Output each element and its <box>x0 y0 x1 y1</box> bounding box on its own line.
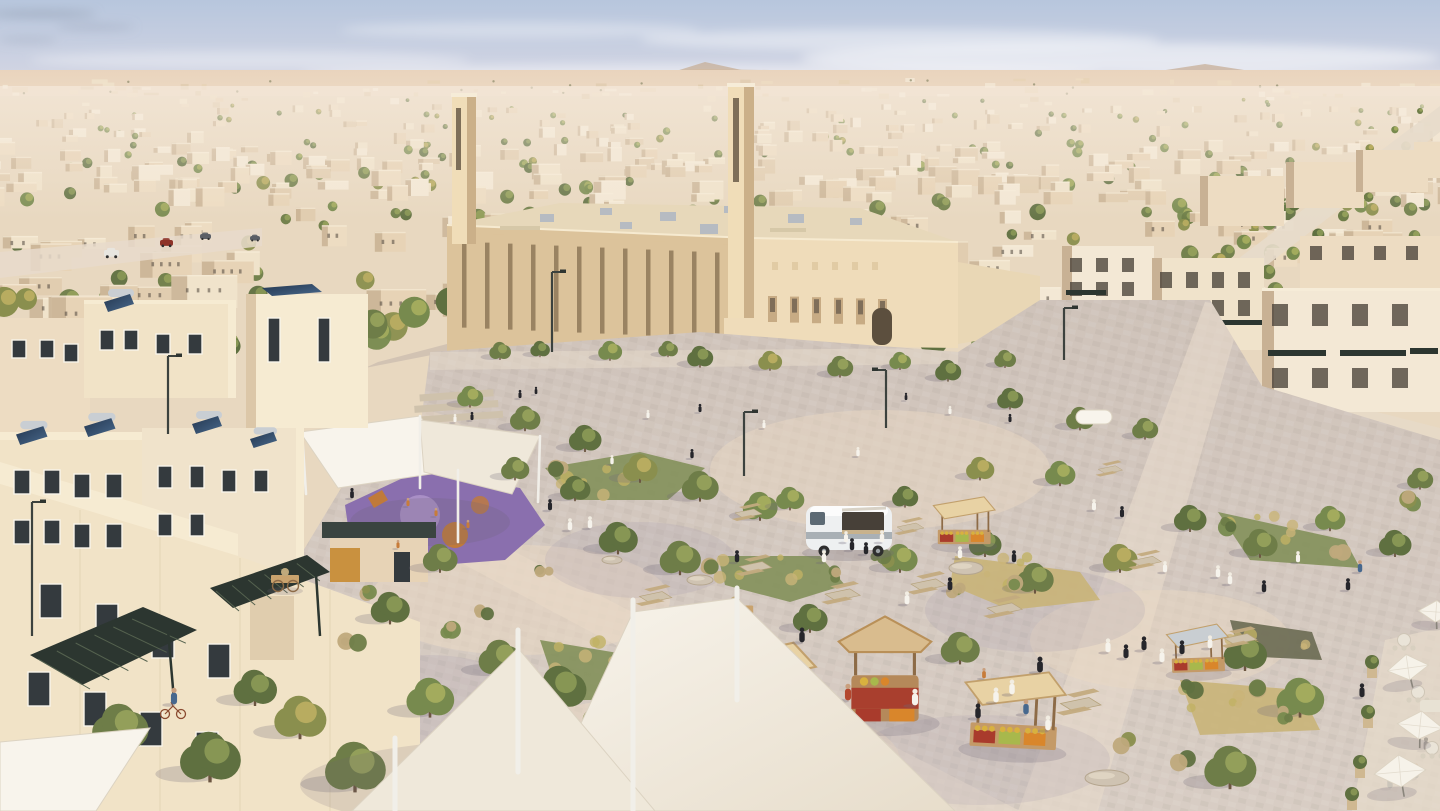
person-shadow <box>758 428 764 430</box>
city-tree <box>1226 246 1234 254</box>
person-head <box>519 390 522 393</box>
window <box>28 672 50 706</box>
distant-tree <box>910 79 912 81</box>
window <box>1374 246 1386 260</box>
person-body <box>470 414 473 420</box>
person-shadow <box>901 400 907 402</box>
skylight <box>500 226 540 230</box>
person-head <box>1296 551 1299 554</box>
rooftop-unit <box>700 224 718 234</box>
parapet <box>202 260 254 261</box>
city-building-shade <box>375 232 382 252</box>
person-body <box>1179 644 1184 654</box>
aerial-cityscape-render: Aerial rendering of a sustainable desert… <box>0 0 1440 811</box>
window <box>1272 368 1288 388</box>
window <box>186 288 189 292</box>
clerestory-window <box>812 262 818 270</box>
tree-highlight <box>386 596 402 612</box>
rooftop-unit <box>600 208 612 215</box>
person-shadow <box>430 516 436 518</box>
window <box>159 293 162 297</box>
person-body <box>1105 642 1110 652</box>
window <box>124 330 138 350</box>
person-head <box>864 542 868 546</box>
window <box>138 293 141 297</box>
window <box>74 524 90 548</box>
person-body <box>856 450 859 457</box>
person-head <box>548 499 551 502</box>
distant-tree <box>127 81 129 83</box>
window <box>148 293 151 297</box>
person-body <box>975 708 980 719</box>
city-building-shade <box>1024 230 1032 240</box>
city-building-shade <box>3 236 11 248</box>
bush <box>1170 754 1187 771</box>
lamp-head <box>40 500 46 504</box>
tree-highlight <box>582 428 596 442</box>
dry-grass <box>597 489 610 502</box>
person-head <box>1024 700 1029 705</box>
person-head <box>1346 578 1350 582</box>
parapet <box>1145 221 1175 222</box>
window <box>836 300 841 314</box>
parapet <box>0 284 37 285</box>
window <box>1284 256 1287 260</box>
facade-slot <box>646 250 651 336</box>
distant-building <box>1013 79 1025 81</box>
window <box>1238 300 1250 316</box>
person-head <box>735 550 739 554</box>
distant-building <box>1076 78 1084 80</box>
produce <box>971 531 975 535</box>
person-head <box>568 518 572 522</box>
render-canvas: Aerial rendering of a sustainable desert… <box>0 0 1440 811</box>
truck-counter <box>842 530 884 534</box>
city-tree <box>363 272 373 282</box>
tree-highlight <box>676 545 693 562</box>
parapet <box>128 225 154 226</box>
person-head <box>1262 580 1266 584</box>
person-head <box>958 546 962 550</box>
person-body <box>1346 582 1350 591</box>
avenue-tree <box>1291 248 1298 255</box>
window <box>213 269 216 273</box>
rooftop-unit <box>788 214 804 223</box>
person-head <box>1160 648 1164 652</box>
belt-tree <box>411 300 427 316</box>
person-head <box>171 688 176 693</box>
window <box>1352 368 1368 388</box>
person-head <box>1124 644 1128 648</box>
person-head <box>844 531 847 534</box>
window <box>188 334 202 354</box>
window <box>1379 225 1382 229</box>
person-body <box>1012 554 1016 563</box>
person-shadow <box>345 498 353 500</box>
tree-highlight <box>897 548 911 562</box>
tree-highlight <box>807 608 821 622</box>
distant-building <box>92 79 108 83</box>
tree-highlight <box>522 409 535 422</box>
person-body <box>912 693 918 705</box>
tree-highlight <box>903 489 914 500</box>
window <box>208 644 230 678</box>
person-head <box>1163 561 1166 564</box>
tree-highlight <box>1143 421 1154 432</box>
cafe-chair <box>1392 645 1397 650</box>
tree-highlight <box>426 683 446 703</box>
produce <box>980 531 984 535</box>
tree-highlight <box>1003 352 1012 361</box>
truck-windshield <box>810 512 825 525</box>
produce <box>870 677 878 685</box>
person-shadow <box>402 506 408 508</box>
bush <box>1113 737 1130 754</box>
person-body <box>1216 569 1220 578</box>
cafe-chair <box>1429 753 1434 758</box>
planter <box>1365 655 1379 678</box>
parapet <box>375 232 406 233</box>
facade-slot <box>554 246 559 332</box>
pilaster <box>654 242 665 350</box>
lamp-head <box>560 270 566 274</box>
person-head <box>350 488 353 491</box>
window <box>1272 304 1288 326</box>
window <box>74 474 90 498</box>
facade-slot <box>623 249 628 335</box>
person-shadow <box>1004 422 1010 424</box>
parapet <box>100 285 137 286</box>
bush <box>362 586 370 594</box>
pilaster <box>493 235 504 343</box>
window <box>44 520 60 544</box>
car-cabin <box>202 232 208 234</box>
person-body <box>982 671 986 678</box>
parapet <box>296 208 315 209</box>
rooftop-unit <box>850 218 862 225</box>
person-body <box>958 550 962 559</box>
boulder <box>689 576 705 580</box>
tree-highlight <box>1057 464 1070 477</box>
person-body <box>396 542 399 548</box>
truck-awning <box>842 508 886 510</box>
person-shadow <box>392 548 398 550</box>
tree-highlight <box>614 526 630 542</box>
window <box>770 298 775 312</box>
person-body <box>1228 576 1232 585</box>
city-tree <box>164 274 173 283</box>
clerestory-window <box>792 262 798 270</box>
person-body <box>905 595 910 604</box>
person-body <box>905 395 908 400</box>
dry-grass <box>590 637 600 647</box>
cloud-bank <box>30 51 470 69</box>
person-head <box>905 591 909 595</box>
tree-highlight <box>204 738 229 763</box>
tree-highlight <box>1187 508 1201 522</box>
person-body <box>466 522 469 528</box>
window <box>47 284 50 288</box>
window <box>1031 234 1034 238</box>
parapet <box>322 225 347 226</box>
person-shadow <box>1086 510 1094 512</box>
cloud-wisp <box>0 37 58 43</box>
parapet <box>227 251 260 252</box>
canopy-roof <box>322 522 436 538</box>
distant-tree <box>269 80 271 82</box>
person-head <box>1012 550 1016 554</box>
window <box>239 269 242 273</box>
dry-grass <box>1022 552 1032 562</box>
person-body <box>698 406 701 412</box>
person-head <box>454 414 457 417</box>
person-shadow <box>514 398 520 400</box>
window <box>1002 250 1005 254</box>
window <box>268 318 280 362</box>
window <box>1160 272 1172 288</box>
person-body <box>948 581 953 590</box>
produce <box>949 531 953 535</box>
tree-highlight <box>787 490 799 502</box>
pilaster <box>562 238 573 346</box>
tree-highlight <box>1257 533 1271 547</box>
window <box>380 301 383 305</box>
produce-crate <box>889 709 914 722</box>
clerestory-window <box>832 262 838 270</box>
person-shadow <box>686 458 693 460</box>
person-shadow <box>852 456 859 458</box>
distant-tree <box>1033 83 1035 85</box>
city-building-shade <box>1190 212 1195 222</box>
dry-grass <box>1269 511 1280 522</box>
tree-highlight <box>512 460 524 472</box>
window <box>11 241 14 245</box>
person-head <box>912 689 917 694</box>
avenue-tree <box>1242 236 1250 244</box>
produce <box>940 531 944 535</box>
person-shadow <box>694 412 700 414</box>
person-body <box>1262 584 1266 593</box>
accent-wall <box>330 548 360 582</box>
window <box>222 269 225 273</box>
tree-highlight <box>838 359 849 370</box>
car-cabin <box>252 235 258 237</box>
lamp-head <box>752 410 758 414</box>
solar-awning <box>1268 350 1326 356</box>
window <box>143 234 146 238</box>
window <box>327 234 330 238</box>
person-head <box>850 538 854 542</box>
bush <box>535 566 546 577</box>
tree-highlight <box>946 363 957 374</box>
person-head <box>1142 636 1146 640</box>
person-head <box>647 410 650 413</box>
person-shadow <box>1157 572 1165 574</box>
person-shadow <box>466 420 472 422</box>
window <box>197 288 200 292</box>
person-head <box>1010 680 1015 685</box>
tree-highlight <box>1008 391 1019 402</box>
person-body <box>948 408 951 414</box>
avenue-tree <box>1394 127 1398 131</box>
parapet <box>171 275 237 276</box>
window <box>1096 258 1108 272</box>
window <box>1019 250 1022 254</box>
facade-slot <box>669 251 674 337</box>
planter-shrub <box>1351 789 1358 796</box>
person-head <box>1009 414 1012 417</box>
person-head <box>845 684 850 689</box>
bush <box>1249 679 1266 696</box>
car-wheel <box>106 255 109 258</box>
city-building-shade <box>1145 221 1152 237</box>
produce-crate <box>998 731 1020 745</box>
person-body <box>171 692 177 704</box>
city-building-shade <box>1000 211 1005 224</box>
car-wheel <box>114 255 117 258</box>
parapet <box>901 217 928 218</box>
window <box>190 514 204 536</box>
bush <box>548 461 564 477</box>
window <box>106 474 122 498</box>
produce <box>860 677 868 685</box>
distant-building <box>839 80 850 84</box>
planter <box>1345 787 1359 810</box>
truck-serving-window <box>842 512 884 532</box>
person-head <box>1106 638 1110 642</box>
person-head <box>763 420 766 423</box>
person-shadow <box>838 542 846 544</box>
window <box>1312 304 1328 326</box>
dry-grass <box>984 571 990 577</box>
person-shadow <box>977 678 985 680</box>
bush <box>1284 714 1293 723</box>
window <box>1152 227 1155 231</box>
person-head <box>982 668 985 671</box>
lounge-sofa <box>1420 700 1440 712</box>
lamp-head <box>176 354 182 358</box>
dry-grass <box>717 554 730 567</box>
person-body <box>1163 564 1167 572</box>
produce-crate <box>1174 663 1187 671</box>
facade-slot <box>531 245 536 331</box>
city-building-shade <box>322 225 328 246</box>
person-body <box>453 416 456 422</box>
person-body <box>1159 652 1164 662</box>
bush <box>1335 544 1352 561</box>
tree-highlight <box>1418 471 1429 482</box>
parapet <box>1024 230 1057 231</box>
rooftop-unit <box>620 222 632 229</box>
person-head <box>857 447 860 450</box>
bush <box>1008 579 1020 591</box>
villa-block <box>0 318 90 436</box>
person-shadow <box>531 394 537 396</box>
produce <box>956 531 960 535</box>
cart-goods <box>281 568 289 576</box>
window <box>64 344 78 362</box>
person-shadow <box>462 528 468 530</box>
dry-grass <box>1187 703 1196 712</box>
window <box>792 299 797 313</box>
bush <box>704 559 719 574</box>
person-head <box>435 508 438 511</box>
person-body <box>1009 684 1014 695</box>
person-body <box>1296 554 1300 562</box>
person-head <box>407 498 410 501</box>
pilaster <box>539 237 550 345</box>
dry-grass <box>554 642 564 652</box>
cafe-chair <box>1410 645 1415 650</box>
person-head <box>1216 565 1220 569</box>
clerestory-window <box>852 262 858 270</box>
tree-highlight <box>437 548 451 562</box>
city-tree <box>1011 230 1017 236</box>
distant-building <box>427 80 440 83</box>
parapet <box>969 260 1010 261</box>
window <box>42 306 45 310</box>
parapet <box>31 243 72 244</box>
window <box>222 470 236 492</box>
window <box>44 470 60 494</box>
gazebo-tent <box>1076 410 1112 424</box>
person-head <box>949 406 952 409</box>
solar-awning <box>1340 350 1406 356</box>
person-body <box>1045 720 1050 731</box>
produce <box>960 531 964 535</box>
dry-grass <box>785 573 797 585</box>
distant-tree <box>640 82 642 84</box>
person-body <box>880 534 884 543</box>
person-body <box>1208 639 1213 648</box>
person-body <box>434 510 437 516</box>
person-body <box>1092 502 1096 510</box>
window <box>1070 258 1082 272</box>
person-head <box>1358 560 1362 564</box>
person-body <box>588 520 592 529</box>
person-body <box>799 632 804 643</box>
produce-crate <box>1024 732 1046 746</box>
person-head <box>611 455 614 458</box>
parapet <box>891 215 914 216</box>
person-head <box>1228 572 1232 576</box>
tree-highlight <box>1296 683 1316 703</box>
person-body <box>1359 687 1364 697</box>
bush <box>1225 521 1236 532</box>
dry-grass <box>1254 514 1260 520</box>
window <box>1212 272 1224 288</box>
skylight <box>770 228 806 232</box>
window <box>38 284 41 288</box>
boulder <box>1089 772 1115 779</box>
food-truck <box>802 506 894 561</box>
cafe-chair <box>1415 697 1420 702</box>
city-tree <box>1072 233 1079 240</box>
person-body <box>735 554 739 563</box>
car-wheel <box>257 240 259 242</box>
solar-awning <box>1066 290 1106 295</box>
produce <box>965 531 969 535</box>
parapet <box>604 201 624 202</box>
window <box>14 470 30 494</box>
window <box>1392 304 1408 326</box>
dry-grass <box>777 554 783 560</box>
tree-highlight <box>697 475 712 490</box>
person-body <box>844 534 848 542</box>
car-cabin <box>107 248 115 251</box>
parapet <box>185 222 212 223</box>
planter-shrub <box>1371 657 1378 664</box>
